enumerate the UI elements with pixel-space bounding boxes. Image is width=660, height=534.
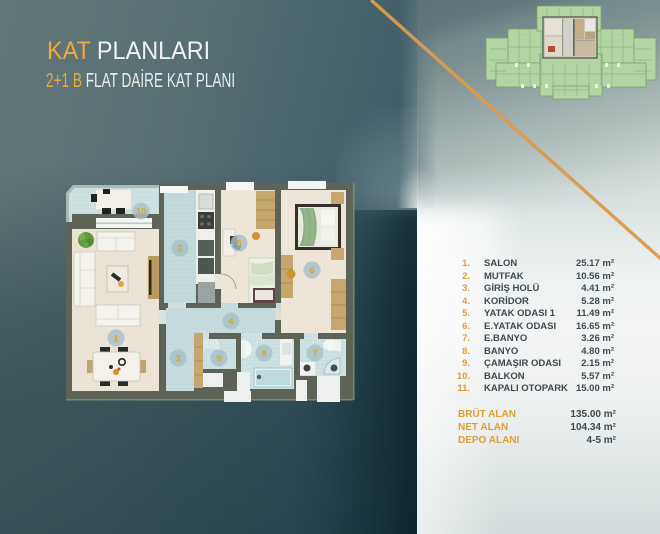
svg-text:8: 8 <box>261 349 266 360</box>
svg-text:7: 7 <box>312 349 317 360</box>
svg-text:1: 1 <box>113 334 119 345</box>
svg-text:9: 9 <box>216 354 221 365</box>
svg-text:4: 4 <box>228 317 234 328</box>
svg-text:3: 3 <box>175 354 180 365</box>
svg-text:6: 6 <box>309 266 314 277</box>
svg-text:2: 2 <box>177 244 182 255</box>
svg-text:10: 10 <box>136 207 147 218</box>
svg-text:5: 5 <box>236 239 242 250</box>
